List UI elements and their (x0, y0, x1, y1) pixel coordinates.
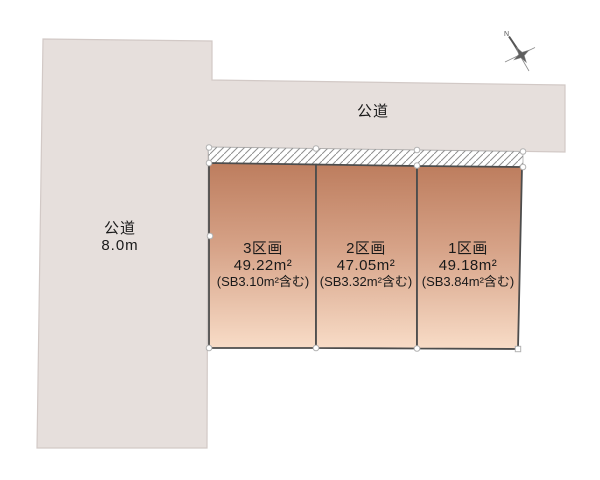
survey-point-marker (313, 146, 319, 152)
compass-star (509, 43, 534, 68)
survey-point-marker (520, 164, 526, 170)
survey-point-marker (520, 149, 526, 155)
site-plan: N 公道 8.0m 公道 3区画 49.22m² (SB3.10m²含む) 2区… (0, 0, 600, 480)
plot-2-name: 2区画 (320, 241, 412, 258)
top-road-name: 公道 (357, 104, 389, 121)
plot-2-label: 2区画 47.05m² (SB3.32m²含む) (320, 241, 412, 289)
compass-north-label: N (504, 31, 509, 38)
plot-1-area: 49.18m² (422, 258, 514, 275)
left-road-name: 公道 (101, 221, 138, 238)
top-road-label: 公道 (357, 104, 389, 121)
survey-point-marker (206, 160, 212, 166)
survey-point-marker (207, 233, 213, 239)
plot-1-name: 1区画 (422, 241, 514, 258)
plot-1-setback-note: (SB3.84m²含む) (422, 275, 514, 290)
compass-icon: N (504, 31, 535, 71)
survey-point-marker (206, 345, 212, 351)
survey-point-marker (414, 346, 420, 352)
plot-3-setback-note: (SB3.10m²含む) (217, 275, 309, 290)
left-road-label: 公道 8.0m (101, 221, 138, 255)
plot-2-setback-note: (SB3.32m²含む) (320, 275, 412, 290)
plan-drawing: N (0, 0, 600, 480)
left-road-width: 8.0m (101, 238, 138, 255)
survey-point-marker (206, 145, 212, 151)
plot-2-area: 47.05m² (320, 258, 412, 275)
plot-3-name: 3区画 (217, 241, 309, 258)
survey-point-marker (313, 345, 319, 351)
plot-1-label: 1区画 49.18m² (SB3.84m²含む) (422, 241, 514, 289)
plot-3-area: 49.22m² (217, 258, 309, 275)
survey-point-marker (414, 147, 420, 153)
plot-3-label: 3区画 49.22m² (SB3.10m²含む) (217, 241, 309, 289)
survey-point-marker (414, 163, 420, 169)
survey-point-marker-square (515, 346, 520, 351)
